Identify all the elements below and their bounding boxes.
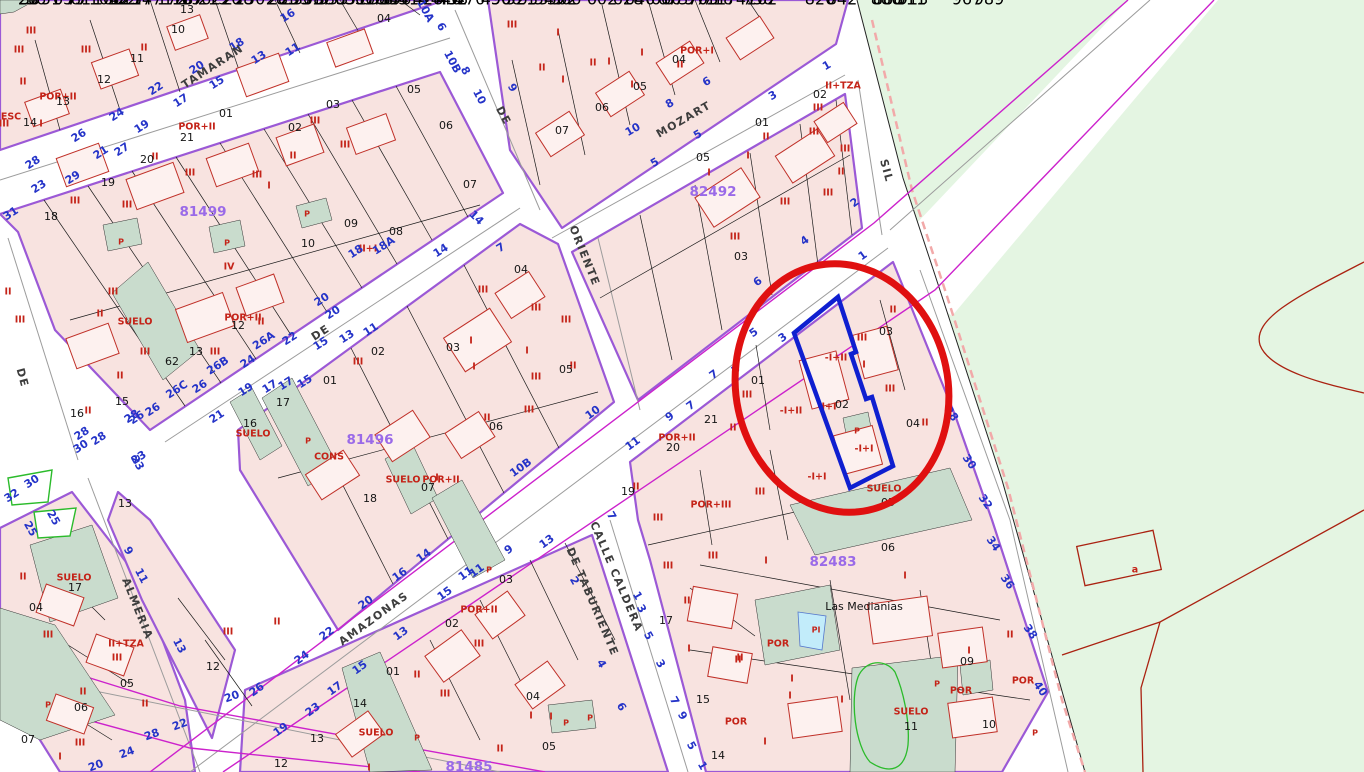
floors-label: III bbox=[474, 639, 485, 650]
parcel-number-label: 13 bbox=[56, 95, 70, 108]
parcel-number-label: 21 bbox=[180, 131, 194, 144]
pool-marker: PI bbox=[812, 626, 821, 635]
svg-text:360: 360 bbox=[345, 0, 376, 9]
parcel-number-label: 11 bbox=[130, 52, 144, 65]
floors-label: -I+II bbox=[825, 353, 848, 364]
parcel-number-label: 03 bbox=[734, 250, 748, 263]
parcel-number-label: 20 bbox=[666, 441, 680, 454]
patio-marker: P bbox=[934, 680, 940, 689]
parcel-number-label: 03 bbox=[499, 573, 513, 586]
floors-label: POR bbox=[725, 717, 748, 728]
floors-label: I bbox=[58, 752, 62, 763]
parcel-number-label: 05 bbox=[120, 677, 134, 690]
locality-label: Las Medianias bbox=[825, 600, 903, 613]
floors-label: II bbox=[19, 572, 26, 583]
parcel-number-label: 07 bbox=[21, 733, 35, 746]
patio-marker: P bbox=[414, 734, 420, 743]
parcel-number-label: 01 bbox=[751, 374, 765, 387]
parcel-number-label: 02 bbox=[813, 88, 827, 101]
parcel-number-label: 14 bbox=[711, 749, 725, 762]
svg-text:911: 911 bbox=[896, 0, 927, 9]
parcel-number-label: 18 bbox=[363, 492, 377, 505]
floors-label: II bbox=[413, 670, 420, 681]
parcel-number-label: 03 bbox=[879, 325, 893, 338]
floors-label: II+TZA bbox=[108, 639, 144, 650]
patio-marker: P bbox=[45, 701, 51, 710]
parcel-number-label: 18 bbox=[44, 210, 58, 223]
floors-label: SUELO bbox=[386, 475, 421, 486]
floors-label: II bbox=[257, 317, 264, 328]
parcel-number-label: 01 bbox=[323, 374, 337, 387]
block-number-label: 81496 bbox=[347, 432, 394, 448]
floors-label: II bbox=[96, 309, 103, 320]
rustic-subparcel-label: a bbox=[1132, 565, 1138, 576]
svg-text:28: 28 bbox=[18, 0, 38, 9]
building-outline bbox=[708, 647, 753, 683]
floors-label: CONS bbox=[314, 452, 344, 463]
parcel-number-label: 05 bbox=[542, 740, 556, 753]
patio-marker: P bbox=[224, 239, 230, 248]
floors-label: I bbox=[763, 737, 767, 748]
floors-label: -I+I bbox=[808, 472, 827, 483]
floors-label: III bbox=[185, 168, 196, 179]
floors-label: III bbox=[561, 315, 572, 326]
svg-text:250: 250 bbox=[235, 0, 266, 9]
floors-label: I bbox=[862, 360, 866, 371]
parcel-number-label: 01 bbox=[219, 107, 233, 120]
parcel-number-label: 13 bbox=[189, 345, 203, 358]
floors-label: III bbox=[252, 170, 263, 181]
block-number-label: 81485 bbox=[446, 759, 493, 772]
floors-label: I bbox=[469, 336, 473, 347]
patio-marker: P bbox=[854, 427, 860, 436]
svg-text:506: 506 bbox=[491, 0, 522, 9]
svg-text:213: 213 bbox=[198, 0, 229, 9]
floors-label: I bbox=[746, 151, 750, 162]
floors-label: III bbox=[857, 333, 868, 344]
floors-label: III bbox=[809, 127, 820, 138]
parcel-number-label: 10 bbox=[171, 23, 185, 36]
parcel-number-label: 13 bbox=[180, 3, 194, 16]
floors-label: I bbox=[640, 48, 644, 59]
parcel-number-label: 11 bbox=[904, 720, 918, 733]
floors-label: II bbox=[79, 687, 86, 698]
floors-label: II bbox=[19, 77, 26, 88]
floors-label: -I+II bbox=[780, 406, 803, 417]
floors-label: III bbox=[663, 561, 674, 572]
parcel-number-label: 07 bbox=[463, 178, 477, 191]
floors-label: SUELO bbox=[236, 429, 271, 440]
floors-label: I bbox=[549, 712, 553, 723]
floors-label: III bbox=[840, 144, 851, 155]
parcel-number-label: 62 bbox=[165, 355, 179, 368]
floors-label: III bbox=[813, 103, 824, 114]
floors-label: III bbox=[81, 45, 92, 56]
parcel-number-label: 06 bbox=[74, 701, 88, 714]
floors-label: III bbox=[885, 384, 896, 395]
parcel-number-label: 02 bbox=[445, 617, 459, 630]
svg-text:758: 758 bbox=[743, 0, 774, 9]
floors-label: SUELO bbox=[118, 317, 153, 328]
svg-text:75: 75 bbox=[65, 0, 85, 9]
floors-label: III bbox=[478, 285, 489, 296]
floors-label: POR bbox=[767, 639, 790, 650]
patio-marker: P bbox=[1032, 729, 1038, 738]
floors-label: III bbox=[353, 357, 364, 368]
floors-label: III bbox=[823, 188, 834, 199]
parcel-number-label: 04 bbox=[672, 53, 686, 66]
floors-label: I bbox=[707, 168, 711, 179]
floors-label: II bbox=[762, 132, 769, 143]
floors-label: III bbox=[440, 689, 451, 700]
parcel-number-label: 01 bbox=[755, 116, 769, 129]
parcel-number-label: 07 bbox=[555, 124, 569, 137]
floors-label: POR+II bbox=[460, 605, 497, 616]
parcel-number-label: 19 bbox=[621, 485, 635, 498]
floors-label: I bbox=[687, 644, 691, 655]
parcel-number-label: 02 bbox=[371, 345, 385, 358]
floors-label: II bbox=[4, 287, 11, 298]
floors-label: III bbox=[75, 738, 86, 749]
block-number-label: 82492 bbox=[690, 184, 737, 200]
floors-label: II bbox=[837, 167, 844, 178]
floors-label: III bbox=[730, 232, 741, 243]
svg-text:549: 549 bbox=[534, 0, 565, 9]
floors-label: I bbox=[367, 763, 371, 772]
svg-text:317: 317 bbox=[302, 0, 333, 9]
patio-marker: P bbox=[118, 238, 124, 247]
floors-label: III bbox=[26, 26, 37, 37]
parcel-number-label: 10 bbox=[301, 237, 315, 250]
parcel-number-label: 12 bbox=[206, 660, 220, 673]
floors-label: SUELO bbox=[867, 484, 902, 495]
svg-text:842: 842 bbox=[827, 0, 858, 9]
building-outline bbox=[788, 697, 842, 739]
cadastral-map[interactable]: POR+IIPOR+IIPOR+IIPOR+IIPOR+IIPOR+IIPOR+… bbox=[0, 0, 1364, 772]
parcel-number-label: 15 bbox=[696, 693, 710, 706]
floors-label: POR+III bbox=[691, 500, 732, 511]
parcel-number-label: 19 bbox=[101, 176, 115, 189]
floors-label: I bbox=[561, 75, 565, 86]
floors-label: II bbox=[141, 699, 148, 710]
floors-label: II bbox=[496, 744, 503, 755]
parcel-number-label: 04 bbox=[526, 690, 540, 703]
floors-label: III bbox=[43, 630, 54, 641]
parcel-number-label: 14 bbox=[353, 697, 367, 710]
patio-marker: P bbox=[563, 719, 569, 728]
parcel-number-label: 05 bbox=[696, 151, 710, 164]
parcel-number-label: 07 bbox=[421, 481, 435, 494]
svg-text:718: 718 bbox=[703, 0, 734, 9]
parcel-number-label: 12 bbox=[231, 319, 245, 332]
patio-marker: P bbox=[587, 714, 593, 723]
floors-label: III bbox=[70, 196, 81, 207]
parcel-number-label: 04 bbox=[377, 12, 391, 25]
floors-label: I bbox=[764, 556, 768, 567]
floors-label: I bbox=[607, 57, 611, 68]
floors-label: II bbox=[273, 617, 280, 628]
cadastral-map-viewport[interactable]: POR+IIPOR+IIPOR+IIPOR+IIPOR+IIPOR+IIPOR+… bbox=[0, 0, 1364, 772]
svg-text:452: 452 bbox=[437, 0, 468, 9]
floors-label: III bbox=[507, 20, 518, 31]
parcel-number-label: 06 bbox=[439, 119, 453, 132]
parcel-number-label: 17 bbox=[68, 581, 82, 594]
parcel-number-label: 06 bbox=[489, 420, 503, 433]
svg-text:127: 127 bbox=[112, 0, 143, 9]
parcel-number-label: 04 bbox=[906, 417, 920, 430]
floors-label: I bbox=[529, 711, 533, 722]
parcel-number-label: 04 bbox=[514, 263, 528, 276]
patio-marker: P bbox=[305, 437, 311, 446]
parcel-number-label: 16 bbox=[243, 417, 257, 430]
floors-label: III bbox=[531, 372, 542, 383]
parcel-number-label: 03 bbox=[446, 341, 460, 354]
parcel-number-label: 21 bbox=[704, 413, 718, 426]
floors-label: I bbox=[267, 181, 271, 192]
svg-text:393: 393 bbox=[378, 0, 409, 9]
floors-label: SUELO bbox=[359, 728, 394, 739]
floors-label: I bbox=[788, 691, 792, 702]
svg-text:281: 281 bbox=[266, 0, 297, 9]
floors-label: IV bbox=[224, 262, 236, 273]
parcel-number-label: 09 bbox=[960, 655, 974, 668]
block-number-label: 81499 bbox=[180, 204, 227, 220]
parcel-number-label: 05 bbox=[559, 363, 573, 376]
floors-label: III bbox=[210, 347, 221, 358]
floors-label: II bbox=[921, 418, 928, 429]
floors-label: II bbox=[736, 653, 743, 664]
parcel-number-label: 02 bbox=[835, 398, 849, 411]
parcel-number-label: 05 bbox=[633, 80, 647, 93]
parcel-number-label: 13 bbox=[118, 497, 132, 510]
floors-label: I bbox=[790, 674, 794, 685]
patio-marker: P bbox=[304, 210, 310, 219]
floors-label: I bbox=[39, 119, 43, 130]
floors-label: III bbox=[531, 303, 542, 314]
floors-label: I bbox=[472, 362, 476, 373]
svg-text:989: 989 bbox=[974, 0, 1005, 9]
parcel-number-label: 12 bbox=[274, 757, 288, 770]
parcel-number-label: 06 bbox=[595, 101, 609, 114]
floors-label: II bbox=[116, 371, 123, 382]
parcel-number-label: 12 bbox=[97, 73, 111, 86]
floors-label: II bbox=[538, 63, 545, 74]
floors-label: III bbox=[223, 627, 234, 638]
patio-marker: P bbox=[486, 566, 492, 575]
parcel-number-label: 13 bbox=[310, 732, 324, 745]
floors-label: II bbox=[683, 596, 690, 607]
parcel-number-label: 02 bbox=[288, 121, 302, 134]
parcel-number-label: 10 bbox=[982, 718, 996, 731]
floors-label: POR bbox=[950, 686, 973, 697]
floors-label: II bbox=[589, 58, 596, 69]
building-outline bbox=[687, 586, 737, 628]
floors-label: II bbox=[84, 406, 91, 417]
floors-label: III bbox=[755, 487, 766, 498]
floors-label: III bbox=[14, 45, 25, 56]
floors-label: III bbox=[122, 200, 133, 211]
floors-label: III bbox=[340, 140, 351, 151]
parcel-number-label: 06 bbox=[881, 541, 895, 554]
floors-label: III bbox=[310, 116, 321, 127]
floors-label: II bbox=[289, 151, 296, 162]
parcel-number-label: 09 bbox=[344, 217, 358, 230]
floors-label: III bbox=[108, 287, 119, 298]
floors-label: III bbox=[780, 197, 791, 208]
floors-label: II bbox=[1006, 630, 1013, 641]
floors-label: III bbox=[0, 119, 9, 130]
parcel-number-label: 04 bbox=[29, 601, 43, 614]
floors-label: II bbox=[729, 423, 736, 434]
floors-label: I bbox=[435, 473, 439, 484]
parcel-number-label: 15 bbox=[115, 395, 129, 408]
floors-label: I bbox=[525, 346, 529, 357]
floors-label: III bbox=[524, 405, 535, 416]
floors-label: III bbox=[708, 551, 719, 562]
floors-label: III bbox=[15, 315, 26, 326]
floors-label: I bbox=[556, 28, 560, 39]
floors-label: III bbox=[112, 653, 123, 664]
svg-text:628: 628 bbox=[613, 0, 644, 9]
floors-label: II bbox=[889, 305, 896, 316]
parcel-number-label: 05 bbox=[407, 83, 421, 96]
floors-label: SUELO bbox=[894, 707, 929, 718]
parcel-number-label: 16 bbox=[70, 407, 84, 420]
parcel-number-label: 01 bbox=[386, 665, 400, 678]
parcel-number-label: 03 bbox=[326, 98, 340, 111]
floors-label: II+TZA bbox=[825, 81, 861, 92]
floors-label: III bbox=[140, 347, 151, 358]
floors-label: -I+I bbox=[855, 444, 874, 455]
floors-label: III bbox=[742, 390, 753, 401]
svg-text:666: 666 bbox=[651, 0, 682, 9]
parcel-number-label: 14 bbox=[23, 116, 37, 129]
parcel-number-label: 17 bbox=[659, 614, 673, 627]
block-number-label: 82483 bbox=[810, 554, 857, 570]
floors-label: III bbox=[653, 513, 664, 524]
parcel-number-label: 20 bbox=[140, 153, 154, 166]
floors-label: I bbox=[840, 695, 844, 706]
floors-label: I bbox=[903, 571, 907, 582]
parcel-number-label: 17 bbox=[276, 396, 290, 409]
